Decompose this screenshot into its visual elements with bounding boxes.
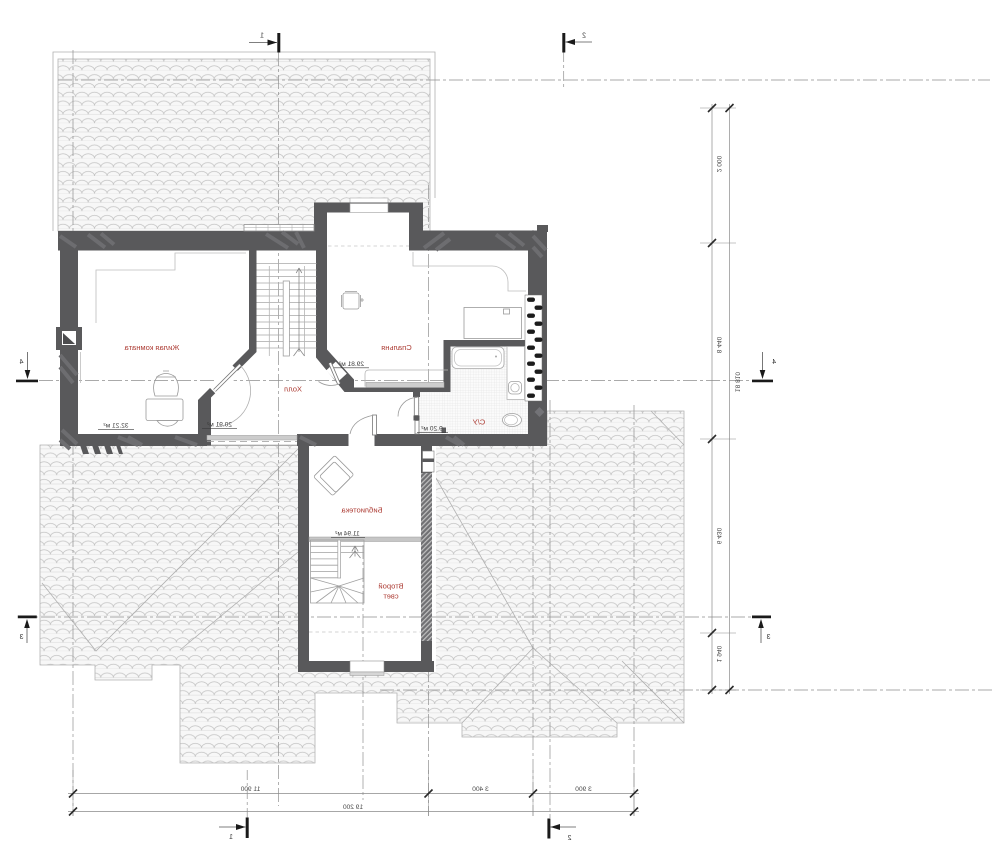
svg-text:Библиотека: Библиотека bbox=[341, 506, 383, 515]
svg-text:Жилая комната: Жилая комната bbox=[124, 343, 180, 352]
svg-text:9.20 м²: 9.20 м² bbox=[421, 426, 443, 433]
svg-text:4: 4 bbox=[772, 359, 776, 366]
svg-text:2 000: 2 000 bbox=[715, 155, 722, 172]
svg-text:20.91 м²: 20.91 м² bbox=[206, 422, 232, 429]
svg-text:1 940: 1 940 bbox=[715, 645, 722, 662]
svg-text:6 430: 6 430 bbox=[715, 527, 722, 544]
svg-text:Второй: Второй bbox=[378, 582, 403, 591]
svg-text:3: 3 bbox=[19, 634, 23, 641]
svg-text:2: 2 bbox=[567, 835, 571, 842]
svg-text:8 440: 8 440 bbox=[715, 336, 722, 353]
svg-text:1: 1 bbox=[260, 33, 264, 40]
svg-text:1: 1 bbox=[229, 834, 233, 841]
svg-text:С/У: С/У bbox=[473, 418, 486, 427]
svg-text:3: 3 bbox=[766, 634, 770, 641]
svg-text:2: 2 bbox=[582, 33, 586, 40]
svg-text:18 810: 18 810 bbox=[734, 372, 741, 393]
svg-text:32.21 м²: 32.21 м² bbox=[103, 423, 129, 430]
svg-text:29.81 м²: 29.81 м² bbox=[338, 361, 364, 368]
svg-text:свет: свет bbox=[383, 592, 399, 601]
svg-text:4: 4 bbox=[19, 359, 23, 366]
svg-text:Спальня: Спальня bbox=[381, 343, 412, 352]
svg-text:11.94 м²: 11.94 м² bbox=[334, 531, 359, 538]
svg-text:Холл: Холл bbox=[284, 385, 302, 394]
svg-text:11 900: 11 900 bbox=[240, 786, 260, 793]
svg-text:3 400: 3 400 bbox=[472, 786, 489, 793]
svg-text:3 900: 3 900 bbox=[575, 786, 592, 793]
svg-text:19 200: 19 200 bbox=[343, 804, 364, 811]
